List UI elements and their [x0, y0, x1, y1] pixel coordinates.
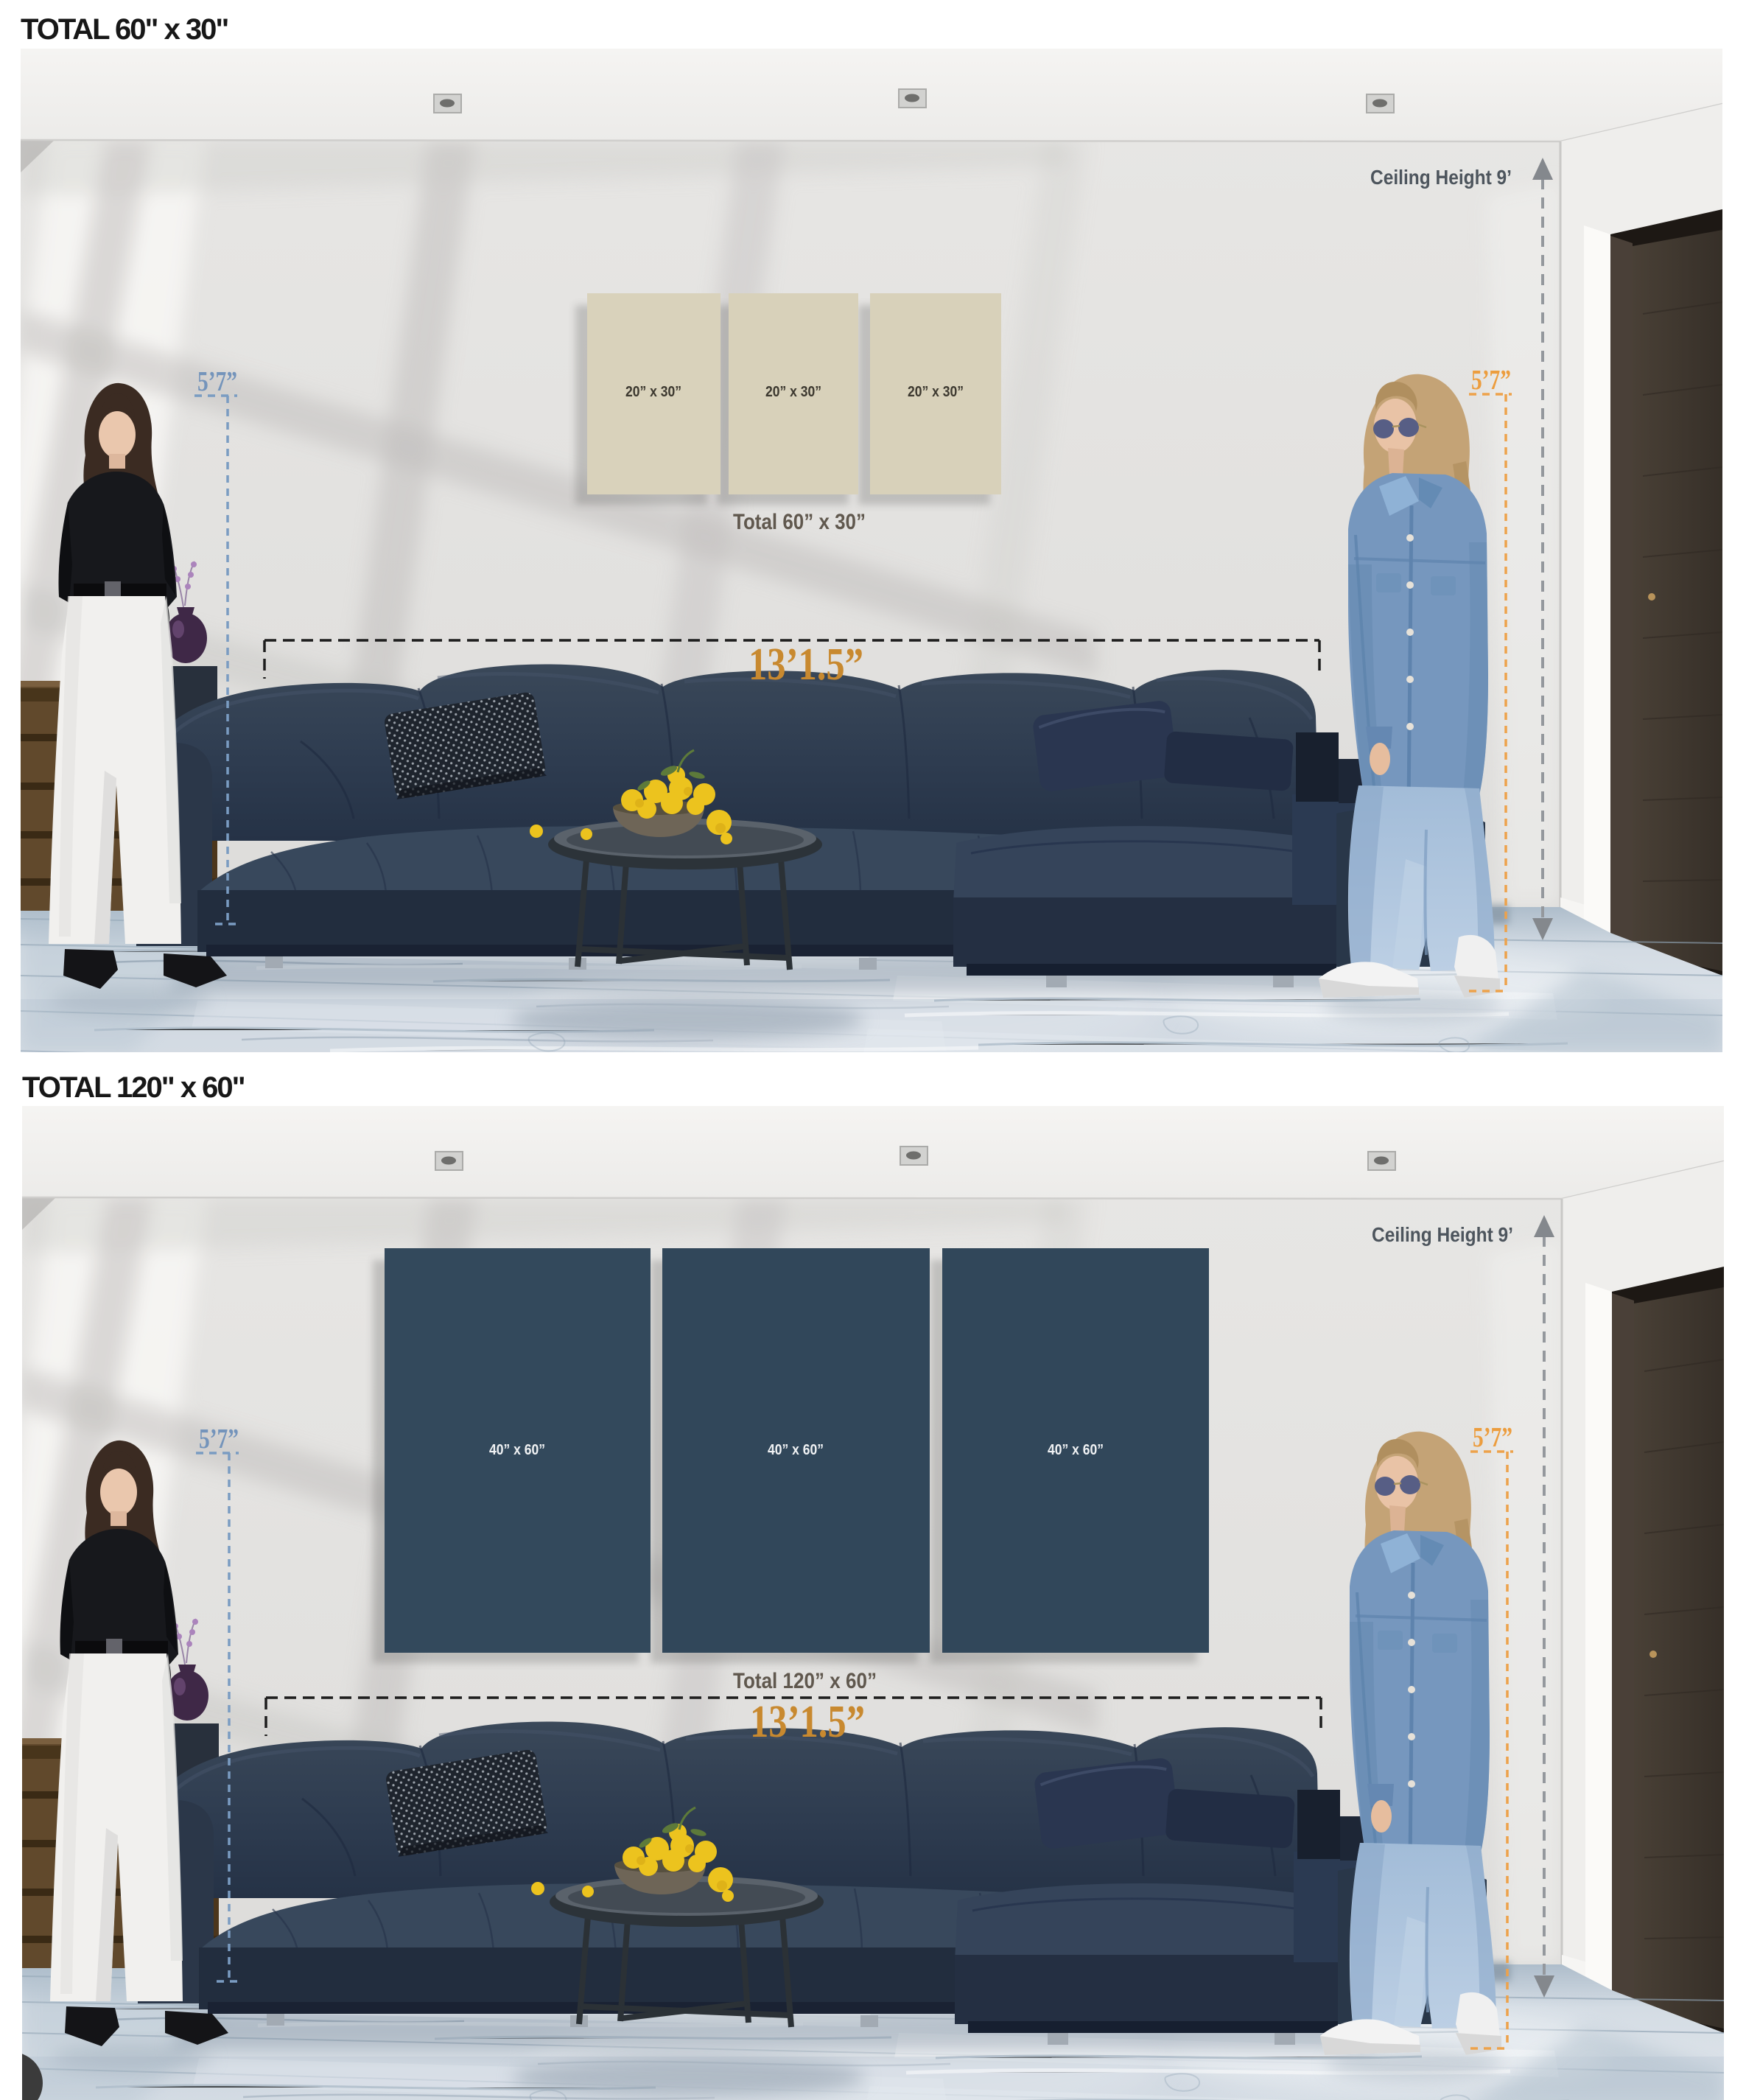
svg-text:40” x 60”: 40” x 60” [768, 1442, 824, 1458]
svg-text:40” x 60”: 40” x 60” [1048, 1442, 1104, 1458]
svg-text:20” x 30”: 20” x 30” [765, 384, 821, 400]
svg-text:40” x 60”: 40” x 60” [489, 1442, 545, 1458]
svg-text:20” x 30”: 20” x 30” [908, 384, 964, 400]
svg-text:20” x 30”: 20” x 30” [625, 384, 681, 400]
svg-text:Total 60” x 30”: Total 60” x 30” [733, 510, 866, 534]
svg-text:Total 120” x 60”: Total 120” x 60” [733, 1669, 877, 1693]
